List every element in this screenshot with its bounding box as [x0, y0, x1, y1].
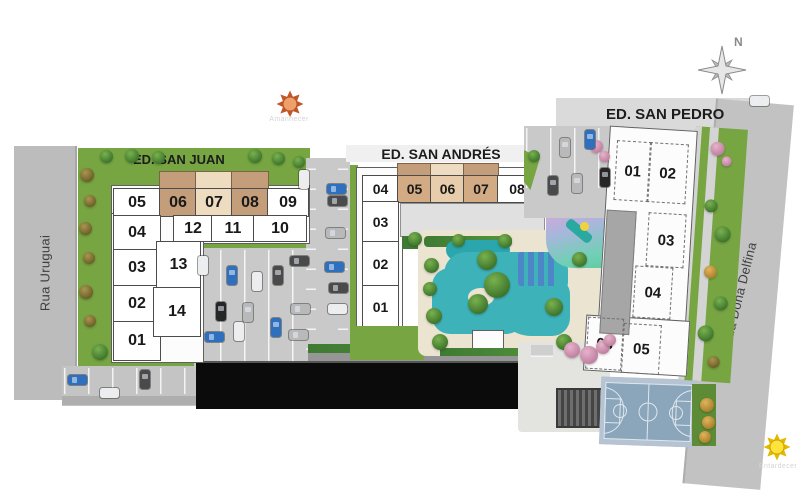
unit-san-juan-04[interactable]: 04	[113, 215, 161, 251]
tree-icon	[477, 250, 497, 270]
car-icon	[329, 283, 348, 293]
unit-san-juan-14[interactable]: 14	[153, 287, 201, 337]
car-icon	[328, 196, 347, 206]
building-label-san-juan: ED. SAN JUAN	[133, 152, 225, 167]
tree-icon	[84, 195, 96, 207]
car-icon	[68, 375, 87, 385]
car-icon	[328, 304, 347, 314]
car-icon	[327, 184, 346, 194]
car-icon	[290, 256, 309, 266]
tree-icon	[707, 356, 720, 369]
unit-san-andres-03[interactable]: 03	[362, 201, 399, 243]
unit-san-pedro-04[interactable]: 04	[632, 265, 673, 319]
unit-san-juan-05[interactable]: 05	[113, 188, 161, 217]
tree-icon	[545, 298, 563, 316]
unit-san-pedro-03[interactable]: 03	[645, 212, 686, 268]
building-label-bar-san-andres: ED. SAN ANDRÉS	[346, 145, 536, 162]
car-icon	[325, 262, 344, 272]
tree-icon	[604, 334, 616, 346]
car-icon	[252, 272, 262, 291]
unit-san-juan-09[interactable]: 09	[267, 188, 309, 217]
compass-n-label: N	[734, 35, 743, 49]
tree-icon	[79, 285, 93, 299]
compass-rose-icon: N	[698, 34, 750, 96]
unit-san-pedro-02[interactable]: 02	[646, 142, 689, 204]
unit-san-pedro-05[interactable]: 05	[621, 323, 662, 375]
tree-icon	[80, 168, 94, 182]
site-plan: Rua Uruguai Rua Dona Delfina ED. SAN JUA…	[0, 0, 810, 500]
tree-icon	[714, 226, 731, 243]
tree-icon	[468, 294, 488, 314]
tree-icon	[424, 258, 439, 273]
unit-san-juan-11[interactable]: 11	[211, 215, 255, 242]
unit-block-highlight	[159, 171, 197, 189]
tree-icon	[100, 150, 113, 163]
unit-san-andres-02[interactable]: 02	[362, 241, 399, 287]
playground-slide-icon	[564, 218, 593, 245]
car-icon	[585, 130, 595, 149]
tree-icon	[710, 141, 725, 156]
car-icon	[100, 388, 119, 398]
sunrise-label: Amanhecer	[260, 116, 318, 123]
unit-san-juan-07[interactable]: 07	[195, 188, 233, 217]
unit-san-andres-07[interactable]: 07	[463, 175, 499, 203]
car-icon	[560, 138, 570, 157]
unit-block-highlight	[195, 171, 233, 189]
tree-icon	[452, 234, 465, 247]
tree-icon	[699, 431, 711, 443]
tree-icon	[697, 325, 714, 342]
pool-house	[472, 330, 504, 350]
street-label-rua-uruguai: Rua Uruguai	[37, 235, 52, 311]
car-icon	[299, 170, 309, 189]
car-icon	[273, 266, 283, 285]
car-icon	[271, 318, 281, 337]
car-icon	[216, 302, 226, 321]
unit-san-juan-03[interactable]: 03	[113, 249, 161, 287]
tree-icon	[704, 199, 718, 213]
car-icon	[234, 322, 244, 341]
basketball-court	[599, 376, 697, 447]
car-icon	[140, 370, 150, 389]
street-rua-uruguai: Rua Uruguai	[14, 146, 77, 400]
unit-san-andres-05[interactable]: 05	[397, 175, 432, 203]
car-icon	[572, 174, 582, 193]
tree-icon	[248, 149, 262, 163]
pergola-icon	[556, 388, 606, 428]
tree-icon	[423, 282, 437, 296]
car-icon	[289, 330, 308, 340]
unit-san-juan-06[interactable]: 06	[159, 188, 197, 217]
unit-san-juan-13[interactable]: 13	[156, 241, 201, 289]
tree-icon	[293, 156, 305, 168]
unit-san-andres-04[interactable]: 04	[362, 175, 399, 203]
tree-icon	[700, 398, 714, 412]
sunset-label: Entardecer	[750, 463, 806, 470]
tree-icon	[84, 315, 96, 327]
unit-san-andres-06[interactable]: 06	[430, 175, 465, 203]
car-icon	[326, 228, 345, 238]
tree-icon	[426, 308, 442, 324]
car-icon	[548, 176, 558, 195]
tree-icon	[125, 149, 139, 163]
unit-san-juan-12[interactable]: 12	[173, 215, 213, 242]
tree-icon	[599, 151, 610, 162]
tree-icon	[484, 272, 510, 298]
unit-san-andres-01[interactable]: 01	[362, 285, 399, 329]
terrace-steps	[531, 345, 553, 357]
tree-icon	[721, 156, 732, 167]
car-icon	[600, 168, 610, 187]
tree-icon	[702, 416, 715, 429]
car-icon	[750, 96, 769, 106]
tree-icon	[528, 150, 540, 162]
sunrise-icon	[276, 90, 304, 118]
car-icon	[243, 303, 253, 322]
tree-icon	[79, 222, 92, 235]
tree-icon	[498, 234, 512, 248]
sunset-icon	[763, 433, 791, 461]
tree-icon	[272, 152, 285, 165]
unit-san-juan-10[interactable]: 10	[253, 215, 307, 242]
tree-icon	[564, 342, 580, 358]
tree-icon	[703, 265, 717, 279]
unit-san-juan-08[interactable]: 08	[231, 188, 269, 217]
tree-icon	[572, 252, 587, 267]
tree-icon	[83, 252, 95, 264]
tree-icon	[408, 232, 422, 246]
tree-icon	[432, 334, 448, 350]
car-icon	[198, 256, 208, 275]
building-label-san-andres: ED. SAN ANDRÉS	[381, 146, 500, 162]
tree-icon	[152, 151, 165, 164]
dark-building	[196, 361, 518, 409]
car-icon	[205, 332, 224, 342]
tree-icon	[713, 296, 728, 311]
car-icon	[227, 266, 237, 285]
building-label-san-pedro: ED. SAN PEDRO	[606, 106, 724, 123]
car-icon	[291, 304, 310, 314]
playground-equipment-icon	[580, 222, 589, 231]
grass-san-andres-garden	[350, 326, 424, 360]
tree-icon	[92, 344, 108, 360]
unit-block-highlight	[231, 171, 269, 189]
